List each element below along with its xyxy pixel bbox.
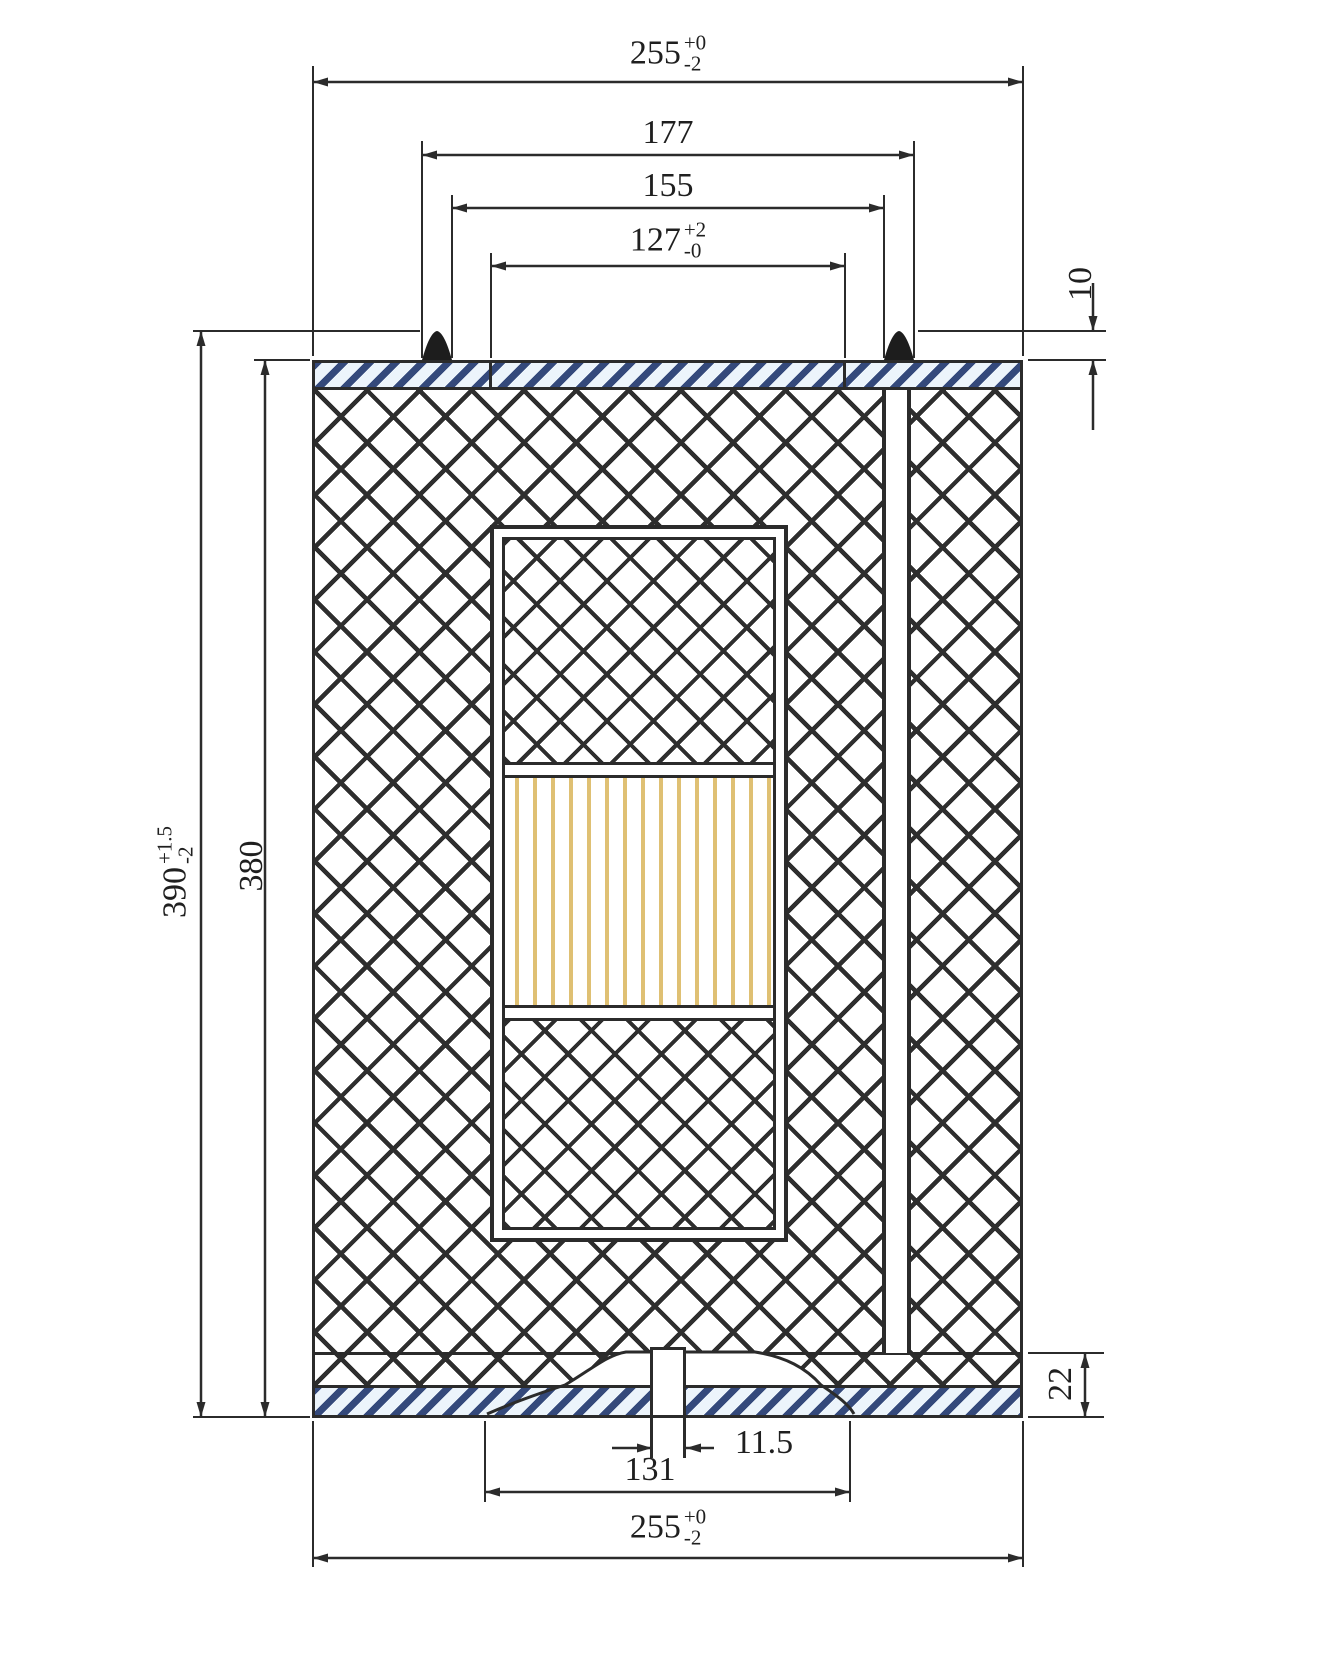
dim-tab-width: 11.5 [735, 1426, 793, 1460]
dim-value: 11.5 [735, 1426, 793, 1460]
extension-lines [193, 66, 1106, 1567]
dim-value: 255 [630, 37, 681, 71]
dim-gasket-height: 10 [1064, 267, 1098, 301]
tol-minus: -2 [684, 54, 706, 75]
dimension-lines [201, 82, 1093, 1558]
dim-skirt-width: 131 [625, 1453, 676, 1487]
dim-value: 127 [630, 224, 681, 258]
dim-overall-height: 390 +1.5-2 [155, 826, 198, 918]
dim-value: 10 [1064, 267, 1098, 301]
dim-gasket-outer: 177 [643, 116, 694, 150]
dimension-arrows [197, 78, 1098, 1563]
dim-value: 155 [643, 169, 694, 203]
tol-plus: +0 [684, 1507, 706, 1528]
dim-value: 390 [159, 867, 193, 918]
gasket-seal-left [422, 331, 452, 360]
dim-body-height: 380 [235, 841, 269, 892]
dim-bottom-width: 255 +0-2 [630, 1507, 706, 1550]
gasket-seal-right [884, 331, 914, 360]
dim-media-outer: 155 [643, 169, 694, 203]
tol-minus: -2 [684, 1528, 706, 1549]
tol-plus: +1.5 [155, 826, 176, 864]
dim-value: 22 [1044, 1367, 1078, 1401]
dim-opening: 127 +2-0 [630, 220, 706, 263]
engineering-drawing-filter-element: 255 +0-2 177 155 127 +2-0 10 390 +1.5-2 … [0, 0, 1339, 1663]
tol-plus: +0 [684, 33, 706, 54]
tol-minus: -0 [684, 241, 706, 262]
dim-top-width: 255 +0-2 [630, 33, 706, 76]
dim-value: 255 [630, 1511, 681, 1545]
dim-value: 131 [625, 1453, 676, 1487]
dim-cap-height: 22 [1044, 1367, 1078, 1401]
tol-plus: +2 [684, 220, 706, 241]
dim-value: 177 [643, 116, 694, 150]
tol-minus: -2 [176, 826, 197, 864]
dim-value: 380 [235, 841, 269, 892]
